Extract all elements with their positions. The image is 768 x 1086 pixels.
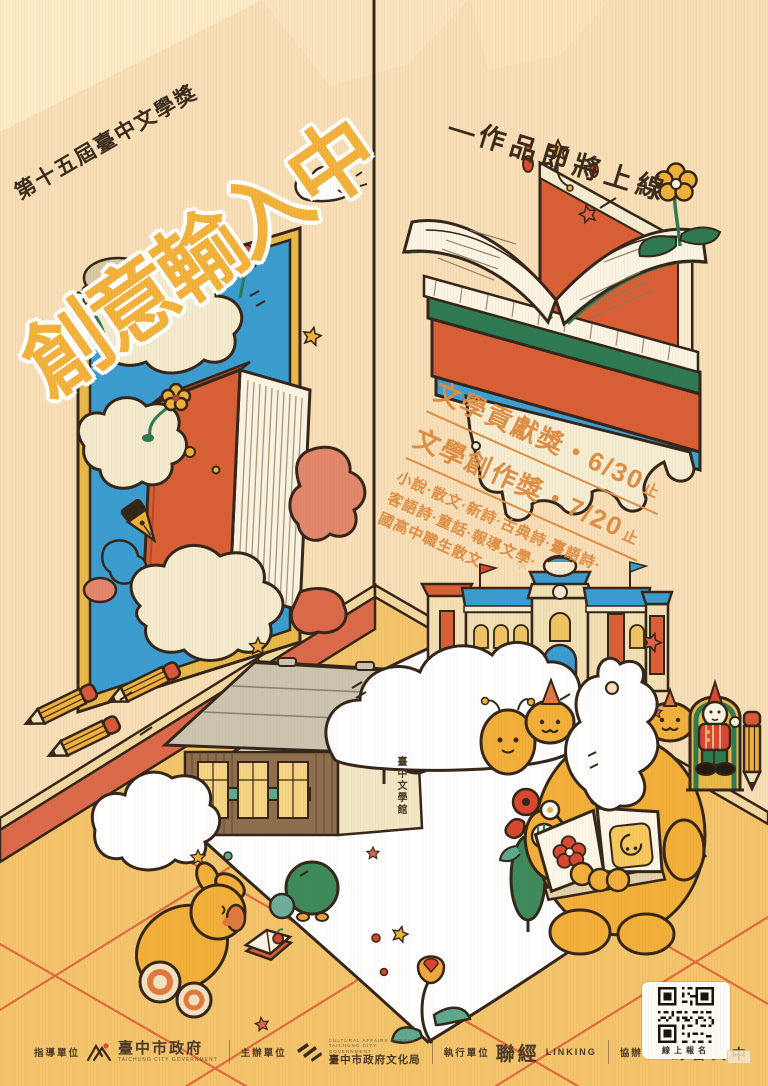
org-name-en: CULTURAL AFFAIRS BUREAU TAICHUNG CITY GO… bbox=[329, 1038, 421, 1055]
teal-dot bbox=[224, 852, 232, 860]
salmon-blob bbox=[84, 578, 116, 602]
org-name: 臺中市政府 bbox=[118, 1041, 218, 1058]
qr-label: 線上報名 bbox=[662, 1045, 710, 1056]
bush-icon bbox=[270, 894, 294, 918]
cultural-affairs-bureau-logo bbox=[293, 1041, 323, 1063]
footer-section-executor: 執行單位 聯經 LINKING bbox=[444, 1039, 597, 1066]
section-label: 指導單位 bbox=[34, 1045, 80, 1059]
footer-section-advisor: 指導單位 臺中市政府 TAICHUNG CITY GOVERNMENT bbox=[34, 1040, 218, 1064]
yellow-dot bbox=[185, 447, 195, 457]
footer-credits: 指導單位 臺中市政府 TAICHUNG CITY GOVERNMENT 主辦單位… bbox=[34, 1030, 630, 1074]
award-deadline-suffix: 止 bbox=[620, 527, 642, 549]
snail-illustration bbox=[609, 823, 653, 869]
yellow-dot bbox=[213, 467, 220, 474]
org-name-en: TAICHUNG CITY GOVERNMENT bbox=[118, 1058, 218, 1064]
footer-section-organizer: 主辦單位 CULTURAL AFFAIRS BUREAU TAICHUNG CI… bbox=[241, 1038, 421, 1067]
footer-divider bbox=[229, 1040, 230, 1064]
footer-divider bbox=[608, 1040, 609, 1064]
red-dot bbox=[372, 934, 380, 942]
corner-tag bbox=[727, 1050, 751, 1064]
org-name: 臺中市政府文化局 bbox=[329, 1055, 421, 1067]
pencil-icon bbox=[744, 712, 760, 789]
qr-registration: 線上報名 bbox=[642, 982, 730, 1059]
poster-illustration bbox=[0, 0, 768, 1086]
footer-divider bbox=[432, 1040, 433, 1064]
linking-publishing-logo: 聯經 bbox=[496, 1039, 540, 1066]
section-label: 主辦單位 bbox=[241, 1045, 287, 1059]
poster: 第十五屆臺中文學獎 創意輸入中 —作品即將上線 文學貢獻獎・6/30止 文學創作… bbox=[0, 0, 768, 1086]
section-label: 執行單位 bbox=[444, 1045, 490, 1059]
salmon-pool bbox=[291, 588, 346, 633]
linking-logo-en: LINKING bbox=[546, 1047, 597, 1057]
taichung-city-government-logo bbox=[86, 1040, 112, 1064]
red-dot bbox=[381, 969, 388, 976]
museum-sign: 臺中文學館 bbox=[393, 756, 408, 836]
qr-code-icon bbox=[658, 987, 714, 1043]
award-deadline-suffix: 止 bbox=[640, 480, 662, 502]
